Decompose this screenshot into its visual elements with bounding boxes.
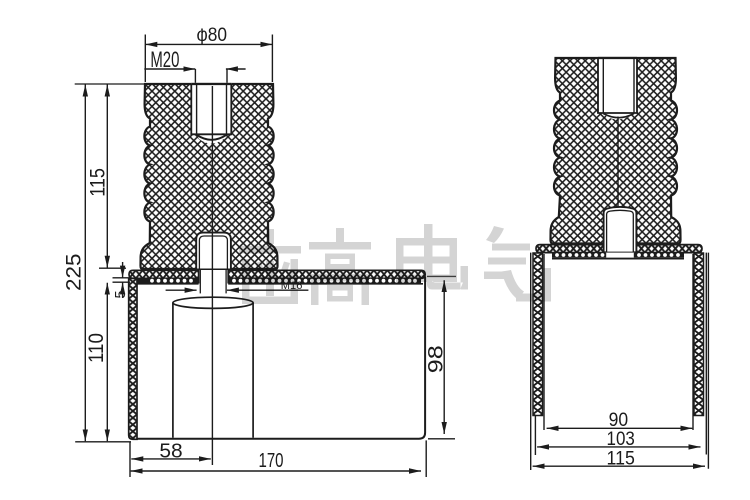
svg-text:5: 5 — [113, 290, 129, 298]
svg-text:98: 98 — [423, 345, 447, 373]
svg-text:M20: M20 — [150, 47, 179, 72]
svg-text:225: 225 — [62, 253, 85, 291]
svg-text:170: 170 — [259, 450, 284, 472]
svg-text:58: 58 — [159, 441, 182, 463]
svg-text:115: 115 — [86, 168, 109, 197]
svg-text:110: 110 — [85, 333, 108, 363]
svg-text:φ80: φ80 — [197, 25, 228, 46]
svg-text:M16: M16 — [281, 280, 303, 292]
svg-text:115: 115 — [607, 448, 635, 470]
